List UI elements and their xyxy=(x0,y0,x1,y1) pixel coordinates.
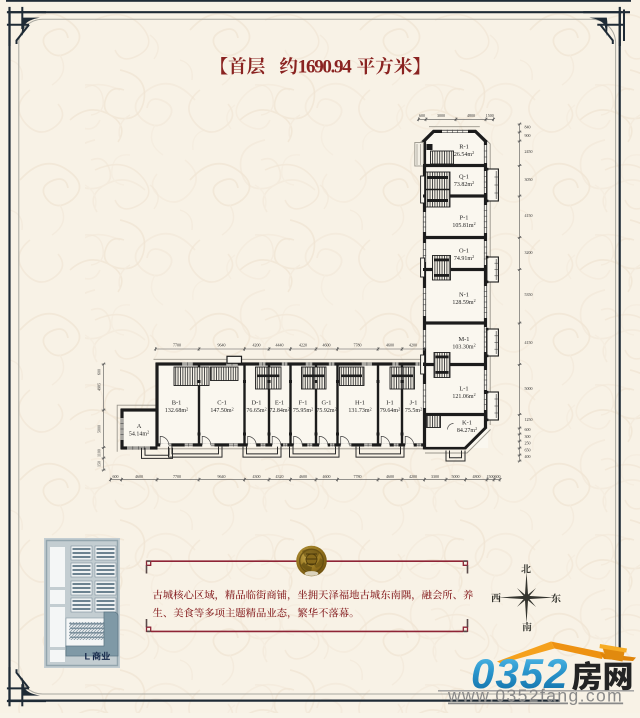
svg-text:K-1: K-1 xyxy=(462,420,472,427)
svg-text:79.64m2: 79.64m2 xyxy=(380,406,400,414)
svg-text:7780: 7780 xyxy=(354,343,362,348)
svg-text:4600: 4600 xyxy=(299,474,307,479)
svg-text:4200: 4200 xyxy=(409,343,417,348)
svg-text:9640: 9640 xyxy=(218,474,226,479)
svg-text:121.06m2: 121.06m2 xyxy=(452,392,475,400)
svg-text:650: 650 xyxy=(525,448,531,453)
svg-text:5350: 5350 xyxy=(525,292,533,297)
svg-text:4200: 4200 xyxy=(409,474,417,479)
svg-text:400: 400 xyxy=(525,454,531,459)
svg-text:C-1: C-1 xyxy=(217,400,227,407)
svg-text:F-1: F-1 xyxy=(299,400,308,407)
svg-text:7700: 7700 xyxy=(173,343,181,348)
svg-text:www.0352fang.com: www.0352fang.com xyxy=(447,686,623,706)
svg-text:4220: 4220 xyxy=(299,343,307,348)
svg-text:76.65m2: 76.65m2 xyxy=(246,406,266,414)
svg-text:9640: 9640 xyxy=(218,343,226,348)
svg-text:4600: 4600 xyxy=(323,474,331,479)
svg-text:N-1: N-1 xyxy=(459,292,469,299)
svg-text:75.95m2: 75.95m2 xyxy=(293,406,313,414)
svg-text:147.50m2: 147.50m2 xyxy=(210,406,233,414)
svg-text:4600: 4600 xyxy=(386,474,394,479)
svg-text:75.92m2: 75.92m2 xyxy=(316,406,336,414)
svg-text:3050: 3050 xyxy=(525,177,533,182)
svg-text:600: 600 xyxy=(97,369,102,375)
svg-text:I-1: I-1 xyxy=(386,400,393,407)
svg-text:1100: 1100 xyxy=(97,449,102,457)
svg-text:3000: 3000 xyxy=(437,113,445,118)
svg-text:73.82m2: 73.82m2 xyxy=(454,180,474,188)
svg-text:7780: 7780 xyxy=(354,474,362,479)
svg-text:G-1: G-1 xyxy=(322,400,332,407)
svg-text:4800: 4800 xyxy=(473,474,481,479)
svg-text:600: 600 xyxy=(525,427,531,432)
svg-text:4600: 4600 xyxy=(323,343,331,348)
svg-text:L-1: L-1 xyxy=(459,386,468,393)
svg-text:4150: 4150 xyxy=(525,340,533,345)
svg-text:R-1: R-1 xyxy=(459,144,469,151)
svg-text:75.5m2: 75.5m2 xyxy=(405,406,422,414)
svg-text:4985: 4985 xyxy=(97,383,102,391)
svg-text:P-1: P-1 xyxy=(460,215,469,222)
svg-text:250: 250 xyxy=(525,441,531,446)
svg-text:840: 840 xyxy=(525,125,531,130)
svg-text:103.30m2: 103.30m2 xyxy=(452,343,475,351)
svg-text:4200: 4200 xyxy=(253,343,261,348)
svg-text:4800: 4800 xyxy=(467,113,475,118)
svg-text:4320: 4320 xyxy=(276,474,284,479)
svg-text:72.84m2: 72.84m2 xyxy=(269,406,289,414)
svg-text:3200: 3200 xyxy=(525,250,533,255)
svg-text:600: 600 xyxy=(495,474,501,479)
svg-text:H-1: H-1 xyxy=(355,400,365,407)
svg-text:128.59m2: 128.59m2 xyxy=(452,298,475,306)
svg-text:900: 900 xyxy=(525,133,531,138)
svg-text:1690.94: 1690.94 xyxy=(298,57,352,78)
svg-text:150: 150 xyxy=(97,461,102,467)
svg-text:J-1: J-1 xyxy=(410,400,418,407)
svg-text:74.91m2: 74.91m2 xyxy=(454,254,474,262)
svg-text:1500: 1500 xyxy=(487,474,495,479)
svg-text:4600: 4600 xyxy=(386,343,394,348)
svg-text:5000: 5000 xyxy=(97,425,102,433)
svg-text:O-1: O-1 xyxy=(459,248,469,255)
svg-text:2450: 2450 xyxy=(525,149,533,154)
svg-text:1250: 1250 xyxy=(525,417,533,422)
svg-text:131.73m2: 131.73m2 xyxy=(348,406,371,414)
svg-text:300: 300 xyxy=(525,434,531,439)
svg-text:1500: 1500 xyxy=(486,113,494,118)
svg-text:26.54m2: 26.54m2 xyxy=(454,150,474,158)
svg-text:84.27m2: 84.27m2 xyxy=(457,426,477,434)
svg-text:54.14m2: 54.14m2 xyxy=(129,430,149,438)
svg-text:3300: 3300 xyxy=(431,474,439,479)
svg-text:4300: 4300 xyxy=(253,474,261,479)
svg-text:5000: 5000 xyxy=(525,386,533,391)
svg-text:E-1: E-1 xyxy=(275,400,284,407)
svg-text:4150: 4150 xyxy=(525,213,533,218)
svg-text:B-1: B-1 xyxy=(172,400,182,407)
svg-text:D-1: D-1 xyxy=(252,400,262,407)
svg-text:600: 600 xyxy=(419,113,425,118)
svg-text:Q-1: Q-1 xyxy=(459,174,469,181)
svg-text:132.68m2: 132.68m2 xyxy=(165,406,188,414)
svg-text:7700: 7700 xyxy=(173,474,181,479)
svg-text:M-1: M-1 xyxy=(458,336,469,343)
svg-text:105.81m2: 105.81m2 xyxy=(452,221,475,229)
svg-text:4600: 4600 xyxy=(135,474,143,479)
svg-text:A: A xyxy=(137,423,142,430)
svg-text:4440: 4440 xyxy=(276,343,284,348)
svg-text:5000: 5000 xyxy=(452,474,460,479)
svg-text:600: 600 xyxy=(113,474,119,479)
svg-text:L: L xyxy=(85,652,91,662)
